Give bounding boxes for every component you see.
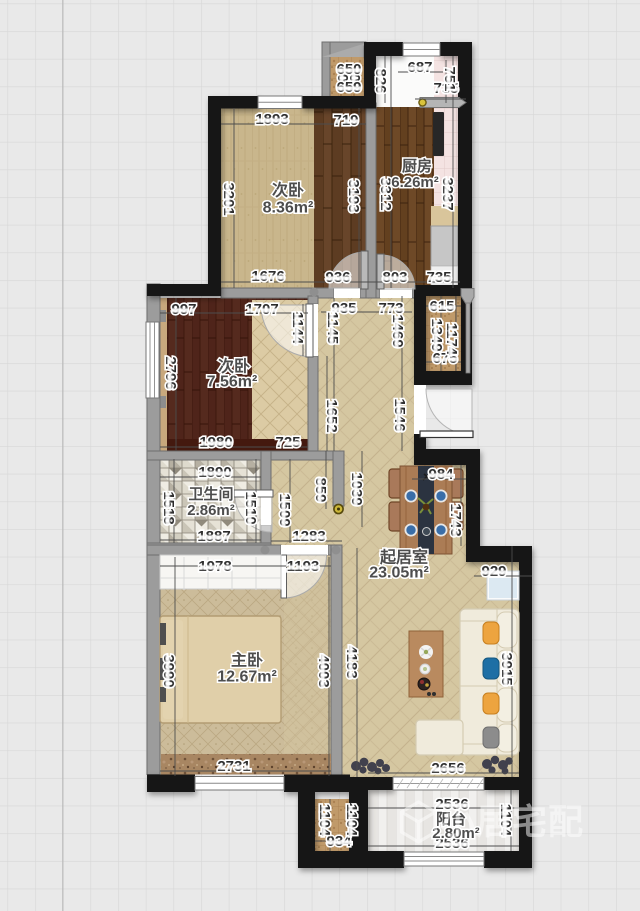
svg-text:936: 936 bbox=[325, 269, 350, 286]
svg-text:719: 719 bbox=[333, 112, 358, 129]
svg-text:2656: 2656 bbox=[431, 760, 464, 777]
svg-text:3990: 3990 bbox=[160, 654, 177, 687]
svg-text:929: 929 bbox=[481, 563, 506, 580]
svg-text:23.05m²: 23.05m² bbox=[369, 564, 429, 581]
svg-text:803: 803 bbox=[382, 269, 407, 286]
svg-text:4003: 4003 bbox=[315, 654, 332, 687]
svg-text:7.56m²: 7.56m² bbox=[207, 373, 258, 390]
svg-text:8.36m²: 8.36m² bbox=[263, 199, 314, 216]
svg-text:1469: 1469 bbox=[389, 314, 406, 347]
svg-text:984: 984 bbox=[428, 466, 454, 483]
svg-text:1893: 1893 bbox=[255, 111, 288, 128]
svg-text:次卧: 次卧 bbox=[272, 180, 304, 199]
svg-text:1104: 1104 bbox=[343, 804, 360, 837]
svg-text:1887: 1887 bbox=[197, 528, 230, 545]
svg-text:1349: 1349 bbox=[428, 318, 445, 351]
svg-text:725: 725 bbox=[275, 434, 300, 451]
svg-text:小居宅配: 小居宅配 bbox=[440, 802, 584, 842]
svg-text:1890: 1890 bbox=[198, 464, 231, 481]
svg-text:615: 615 bbox=[429, 298, 454, 315]
svg-text:2731: 2731 bbox=[217, 758, 250, 775]
svg-text:3915: 3915 bbox=[498, 652, 515, 685]
svg-text:1193: 1193 bbox=[287, 558, 320, 575]
svg-text:3237: 3237 bbox=[439, 177, 456, 210]
svg-text:2.86m²: 2.86m² bbox=[187, 502, 235, 519]
svg-text:1509: 1509 bbox=[276, 493, 293, 526]
svg-text:3193: 3193 bbox=[345, 179, 362, 212]
svg-text:859: 859 bbox=[312, 477, 329, 502]
svg-text:1546: 1546 bbox=[391, 398, 408, 431]
svg-text:659: 659 bbox=[336, 79, 361, 96]
svg-text:1676: 1676 bbox=[251, 268, 284, 285]
svg-text:1980: 1980 bbox=[199, 434, 232, 451]
svg-text:1743: 1743 bbox=[447, 503, 464, 536]
svg-text:厨房: 厨房 bbox=[402, 157, 432, 175]
svg-text:650: 650 bbox=[336, 61, 361, 78]
svg-text:826: 826 bbox=[372, 68, 389, 93]
svg-text:751: 751 bbox=[441, 66, 458, 91]
svg-text:主卧: 主卧 bbox=[231, 650, 263, 669]
svg-text:6.26m²: 6.26m² bbox=[391, 174, 439, 191]
svg-text:1039: 1039 bbox=[348, 472, 365, 505]
svg-text:12.67m²: 12.67m² bbox=[217, 668, 277, 685]
svg-text:1174: 1174 bbox=[443, 323, 460, 356]
svg-text:687: 687 bbox=[407, 59, 432, 76]
svg-text:1144: 1144 bbox=[289, 312, 306, 345]
svg-text:735: 735 bbox=[426, 269, 451, 286]
svg-text:1510: 1510 bbox=[242, 491, 259, 524]
svg-text:1145: 1145 bbox=[324, 312, 341, 345]
svg-text:卫生间: 卫生间 bbox=[188, 485, 233, 503]
svg-text:1104: 1104 bbox=[316, 804, 333, 837]
svg-text:1283: 1283 bbox=[292, 528, 325, 545]
svg-text:3201: 3201 bbox=[220, 182, 237, 215]
svg-text:1652: 1652 bbox=[323, 399, 340, 432]
svg-text:4183: 4183 bbox=[343, 645, 360, 678]
svg-text:1978: 1978 bbox=[198, 558, 231, 575]
svg-text:997: 997 bbox=[171, 301, 196, 318]
svg-text:1518: 1518 bbox=[160, 491, 177, 524]
svg-text:1707: 1707 bbox=[245, 301, 278, 318]
svg-text:2796: 2796 bbox=[162, 356, 179, 389]
